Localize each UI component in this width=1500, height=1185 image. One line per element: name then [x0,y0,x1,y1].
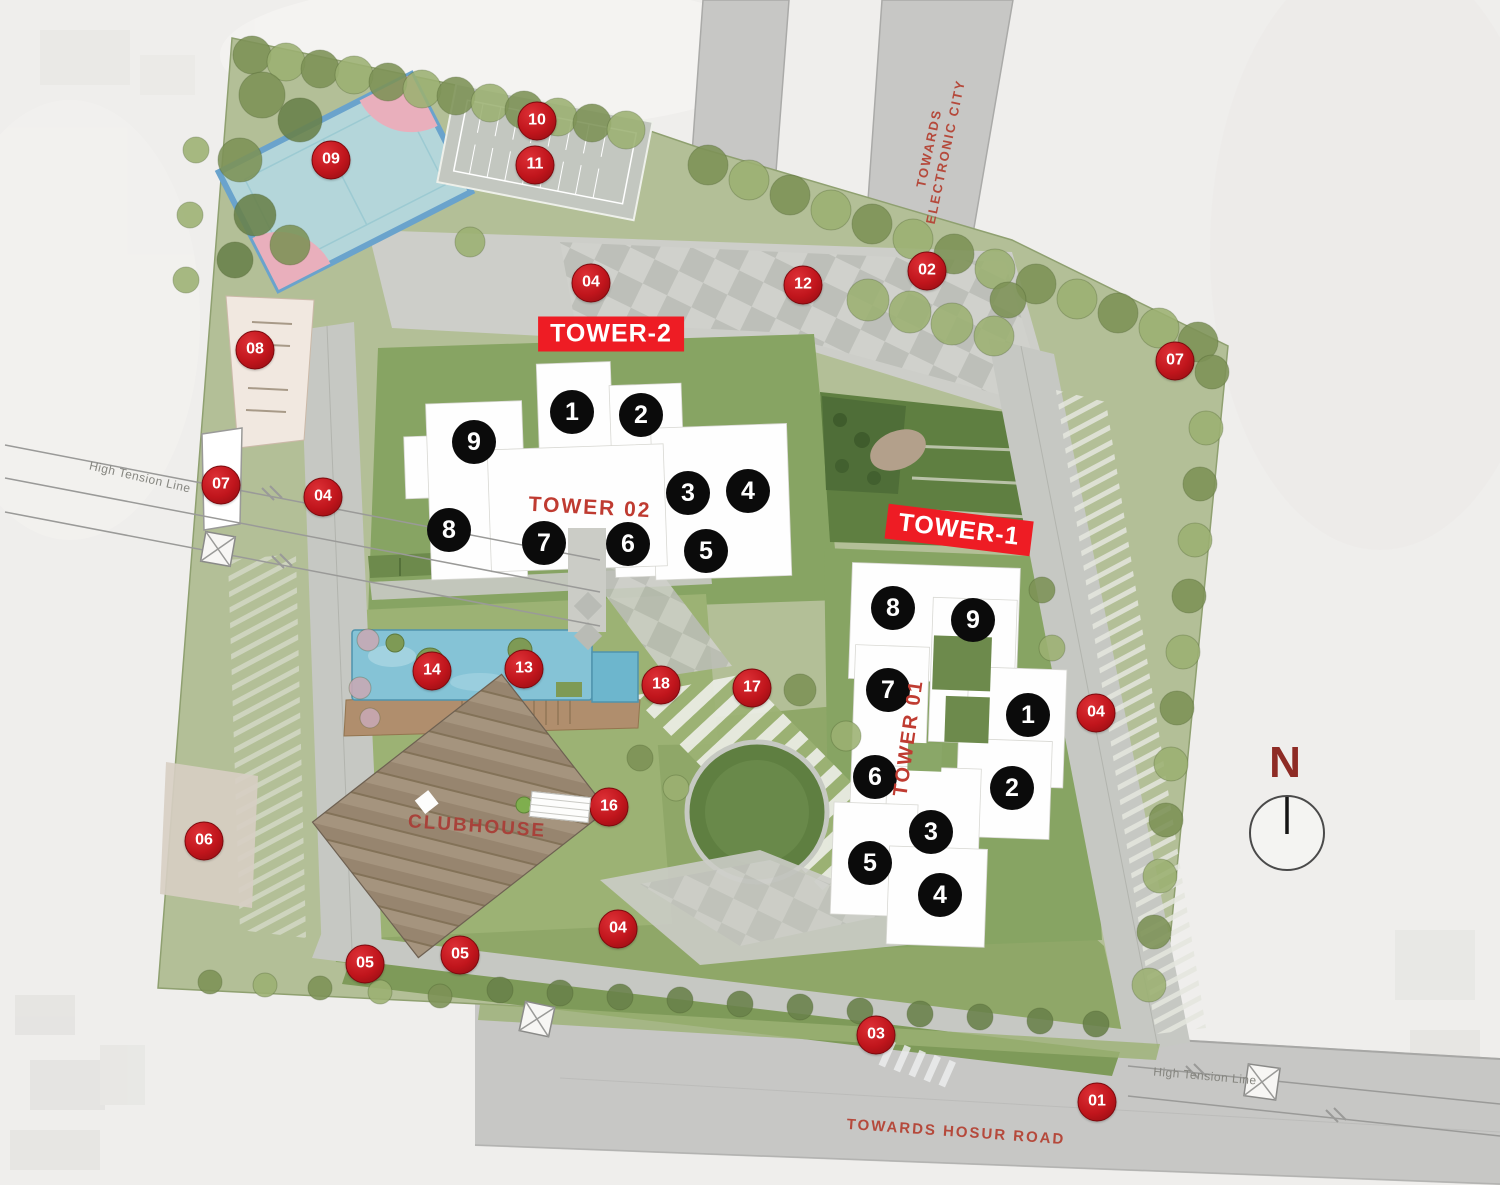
power-pole [201,532,236,567]
north-compass [1250,796,1324,870]
site-plan-artwork [0,0,1500,1185]
power-pole [1244,1064,1280,1100]
utility-plot [202,428,242,530]
site-master-plan: 1011090412020708070404141318171606050504… [0,0,1500,1185]
power-pole [519,1001,555,1037]
west-drive [160,762,258,908]
pavilion-structure [226,296,314,448]
